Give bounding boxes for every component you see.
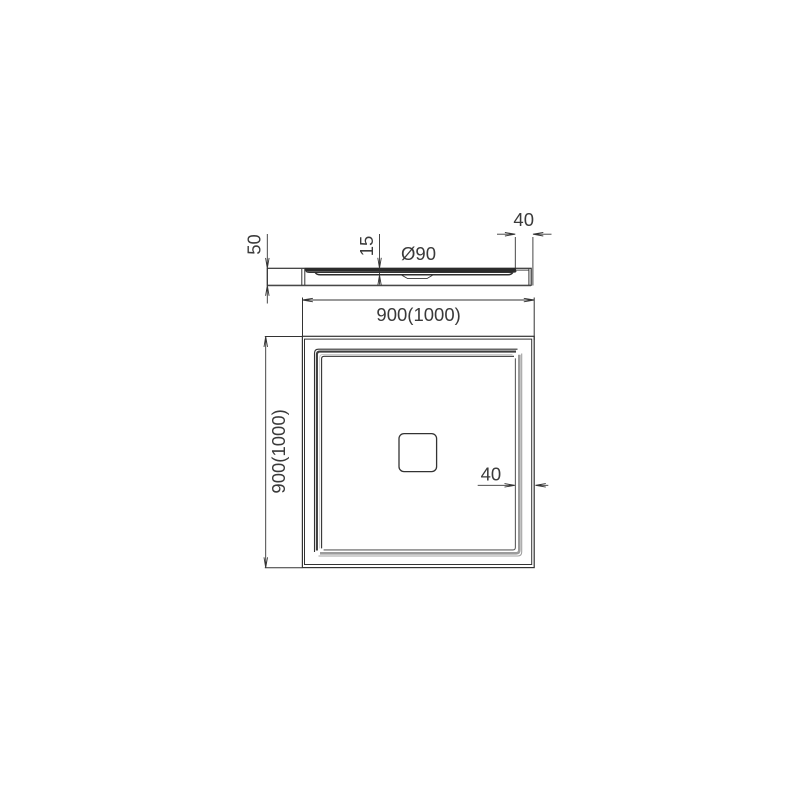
svg-text:40: 40 bbox=[513, 209, 534, 230]
svg-text:900(1000): 900(1000) bbox=[376, 304, 460, 325]
svg-text:Ø90: Ø90 bbox=[401, 243, 436, 264]
svg-text:15: 15 bbox=[356, 236, 377, 257]
svg-text:50: 50 bbox=[244, 234, 265, 255]
svg-text:900(1000): 900(1000) bbox=[268, 409, 289, 493]
svg-text:40: 40 bbox=[481, 463, 502, 484]
